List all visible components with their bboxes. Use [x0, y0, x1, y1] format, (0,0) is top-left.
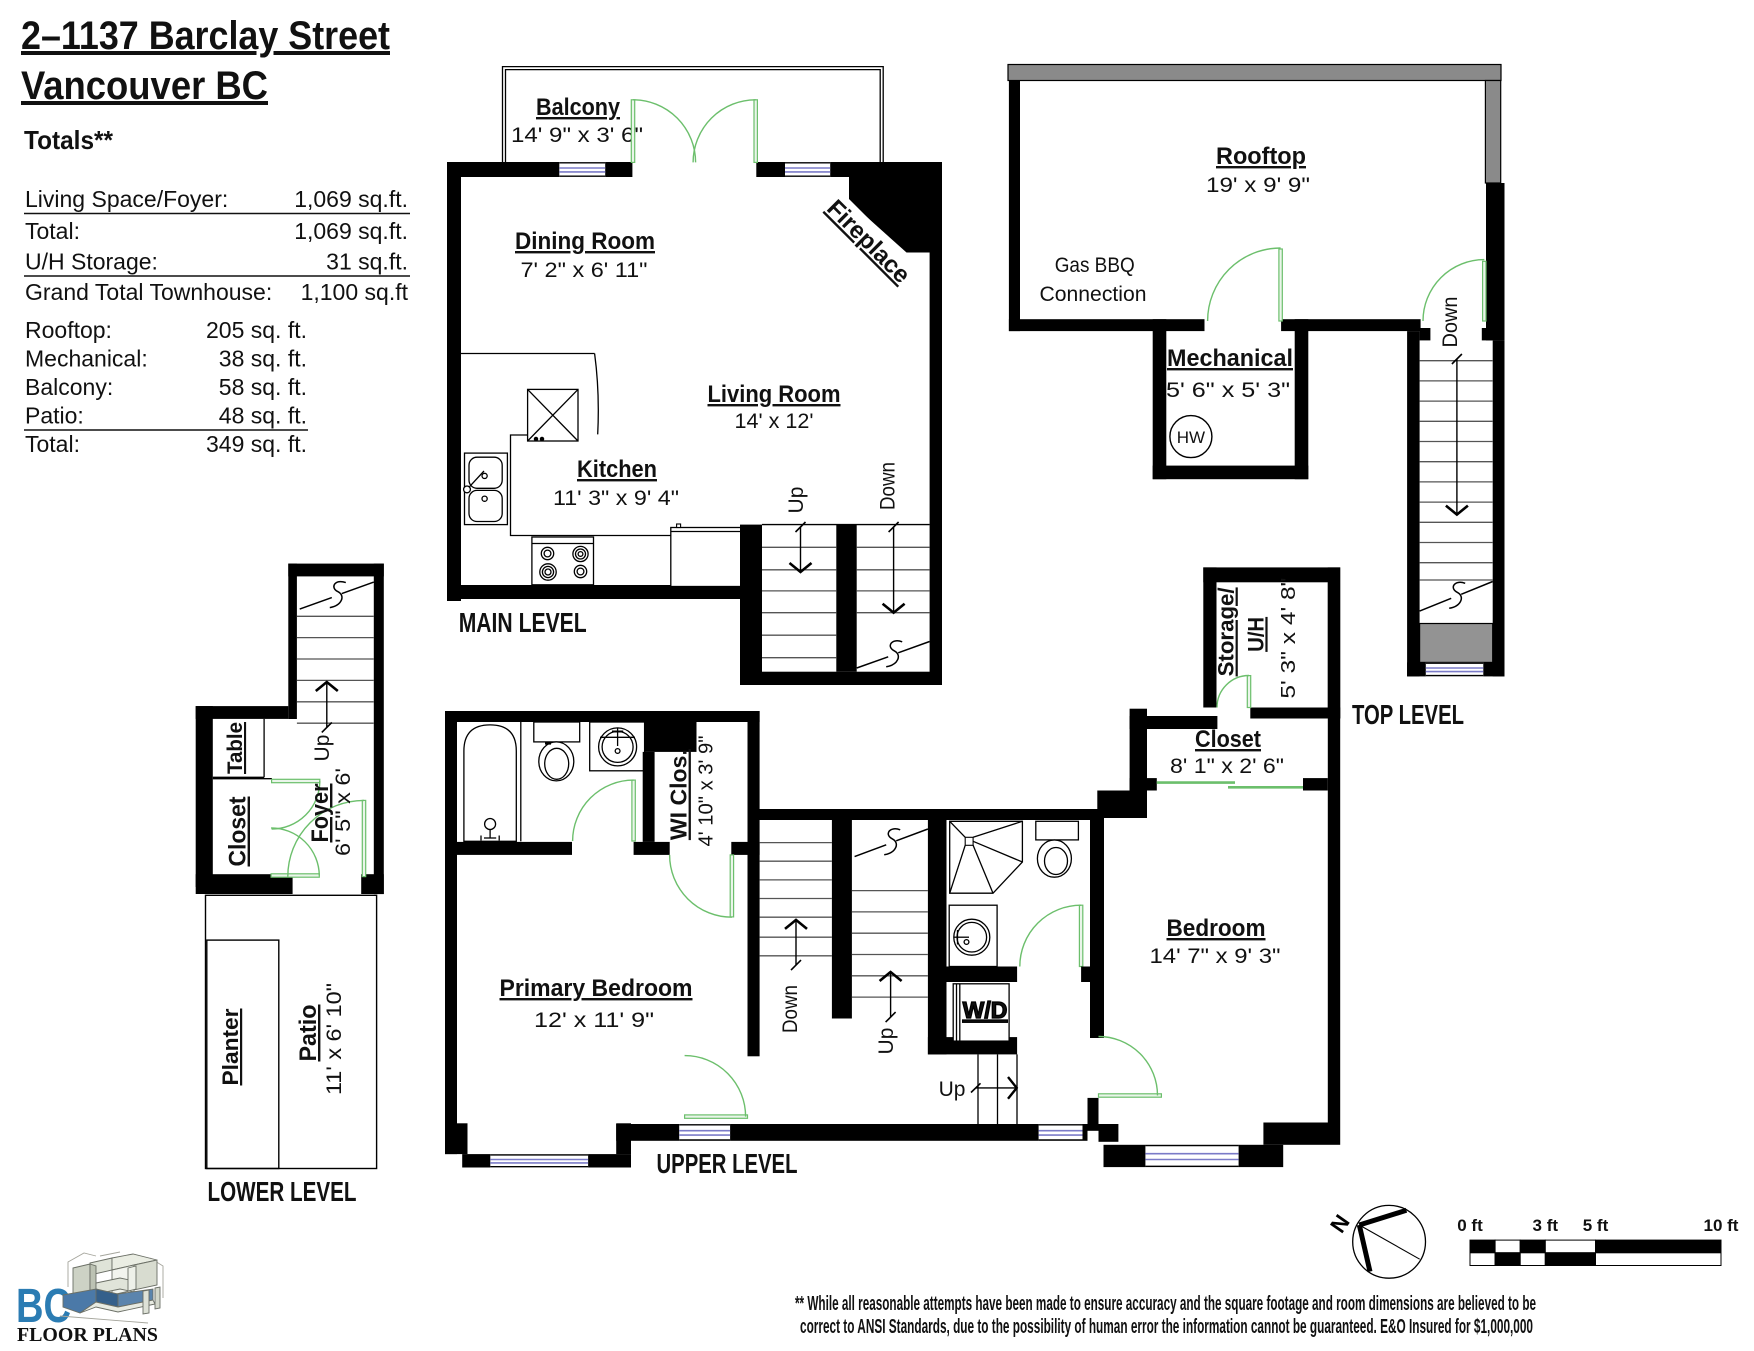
svg-text:Bedroom: Bedroom: [1167, 915, 1266, 942]
svg-text:U/H Storage:: U/H Storage:: [25, 249, 158, 275]
svg-text:Mechanical: Mechanical: [1167, 345, 1293, 372]
svg-text:7' 2" x 6' 11": 7' 2" x 6' 11": [521, 259, 648, 282]
svg-text:Total:: Total:: [25, 431, 80, 457]
svg-text:Down: Down: [877, 462, 900, 510]
svg-text:FLOOR PLANS: FLOOR PLANS: [17, 1324, 158, 1346]
svg-text:** While all reasonable attemp: ** While all reasonable attempts have be…: [795, 1293, 1536, 1315]
svg-text:349 sq. ft.: 349 sq. ft.: [206, 431, 307, 457]
svg-text:Planter: Planter: [218, 1008, 243, 1085]
svg-text:LOWER LEVEL: LOWER LEVEL: [208, 1176, 357, 1207]
svg-text:3 ft: 3 ft: [1533, 1216, 1559, 1235]
svg-text:1,069 sq.ft.: 1,069 sq.ft.: [294, 218, 408, 244]
svg-text:Balcony:: Balcony:: [25, 374, 113, 400]
svg-text:Closet: Closet: [225, 797, 252, 867]
svg-text:Storage/: Storage/: [1214, 587, 1239, 676]
svg-text:31 sq.ft.: 31 sq.ft.: [326, 249, 408, 275]
svg-text:correct to ANSI Standards, due: correct to ANSI Standards, due to the po…: [800, 1316, 1533, 1338]
svg-text:6' 5" x 6': 6' 5" x 6': [332, 768, 355, 856]
svg-text:58 sq. ft.: 58 sq. ft.: [219, 374, 307, 400]
svg-text:5' 3" x 4' 8": 5' 3" x 4' 8": [1278, 578, 1300, 699]
svg-text:U/H: U/H: [1243, 617, 1268, 652]
svg-text:14' x 12': 14' x 12': [735, 410, 814, 433]
svg-text:0 ft: 0 ft: [1457, 1216, 1483, 1235]
svg-text:Dining Room: Dining Room: [515, 228, 655, 255]
svg-text:UPPER LEVEL: UPPER LEVEL: [657, 1148, 798, 1179]
svg-text:Table: Table: [224, 722, 247, 774]
svg-text:Rooftop: Rooftop: [1216, 143, 1306, 170]
svg-text:11' 3" x 9' 4": 11' 3" x 9' 4": [553, 487, 679, 510]
svg-text:Up: Up: [311, 735, 334, 762]
svg-text:11' x 6' 10": 11' x 6' 10": [323, 983, 346, 1095]
svg-text:1,069 sq.ft.: 1,069 sq.ft.: [294, 186, 408, 212]
svg-text:Gas BBQ: Gas BBQ: [1055, 254, 1135, 277]
svg-text:Up: Up: [875, 1028, 898, 1055]
svg-text:W/D: W/D: [963, 997, 1008, 1023]
svg-text:Balcony: Balcony: [536, 94, 621, 121]
svg-text:HW: HW: [1177, 428, 1205, 447]
svg-text:48 sq. ft.: 48 sq. ft.: [219, 403, 307, 429]
svg-text:1,100 sq.ft: 1,100 sq.ft: [301, 279, 409, 305]
svg-text:MAIN LEVEL: MAIN LEVEL: [459, 607, 587, 638]
svg-text:Up: Up: [785, 487, 808, 514]
svg-text:Foyer: Foyer: [307, 784, 334, 843]
svg-text:Living Space/Foyer:: Living Space/Foyer:: [25, 186, 228, 212]
svg-text:8' 1" x 2' 6": 8' 1" x 2' 6": [1170, 755, 1284, 778]
svg-text:14' 9" x 3' 6": 14' 9" x 3' 6": [511, 124, 643, 147]
svg-text:5' 6" x 5' 3": 5' 6" x 5' 3": [1166, 379, 1290, 402]
svg-text:5 ft: 5 ft: [1583, 1216, 1609, 1235]
svg-text:Patio:: Patio:: [25, 403, 84, 429]
svg-text:205 sq. ft.: 205 sq. ft.: [206, 317, 307, 343]
svg-text:Down: Down: [1439, 297, 1462, 348]
svg-text:Vancouver BC: Vancouver BC: [21, 64, 268, 108]
svg-text:Living Room: Living Room: [708, 381, 841, 408]
svg-text:Down: Down: [779, 985, 802, 1033]
svg-text:Grand Total Townhouse:: Grand Total Townhouse:: [25, 279, 272, 305]
svg-text:12' x 11' 9": 12' x 11' 9": [534, 1009, 654, 1032]
svg-text:Rooftop:: Rooftop:: [25, 317, 112, 343]
svg-text:WI Clos.: WI Clos.: [666, 749, 692, 840]
svg-text:Mechanical:: Mechanical:: [25, 346, 148, 372]
svg-text:2–1137 Barclay Street: 2–1137 Barclay Street: [21, 14, 390, 58]
svg-text:Closet: Closet: [1195, 726, 1261, 753]
svg-text:10 ft: 10 ft: [1704, 1216, 1739, 1235]
svg-text:14' 7" x 9' 3": 14' 7" x 9' 3": [1150, 945, 1281, 968]
svg-text:Primary Bedroom: Primary Bedroom: [500, 975, 693, 1002]
svg-text:19' x 9' 9": 19' x 9' 9": [1206, 174, 1310, 197]
svg-text:TOP LEVEL: TOP LEVEL: [1352, 699, 1464, 730]
svg-text:Connection: Connection: [1040, 283, 1147, 306]
svg-text:38 sq. ft.: 38 sq. ft.: [219, 346, 307, 372]
svg-text:Up: Up: [939, 1078, 966, 1101]
svg-text:Totals**: Totals**: [24, 125, 114, 155]
svg-text:Patio: Patio: [295, 1005, 322, 1062]
svg-text:4' 10" x 3' 9": 4' 10" x 3' 9": [696, 736, 718, 847]
svg-text:Kitchen: Kitchen: [577, 456, 657, 483]
svg-text:Total:: Total:: [25, 218, 80, 244]
